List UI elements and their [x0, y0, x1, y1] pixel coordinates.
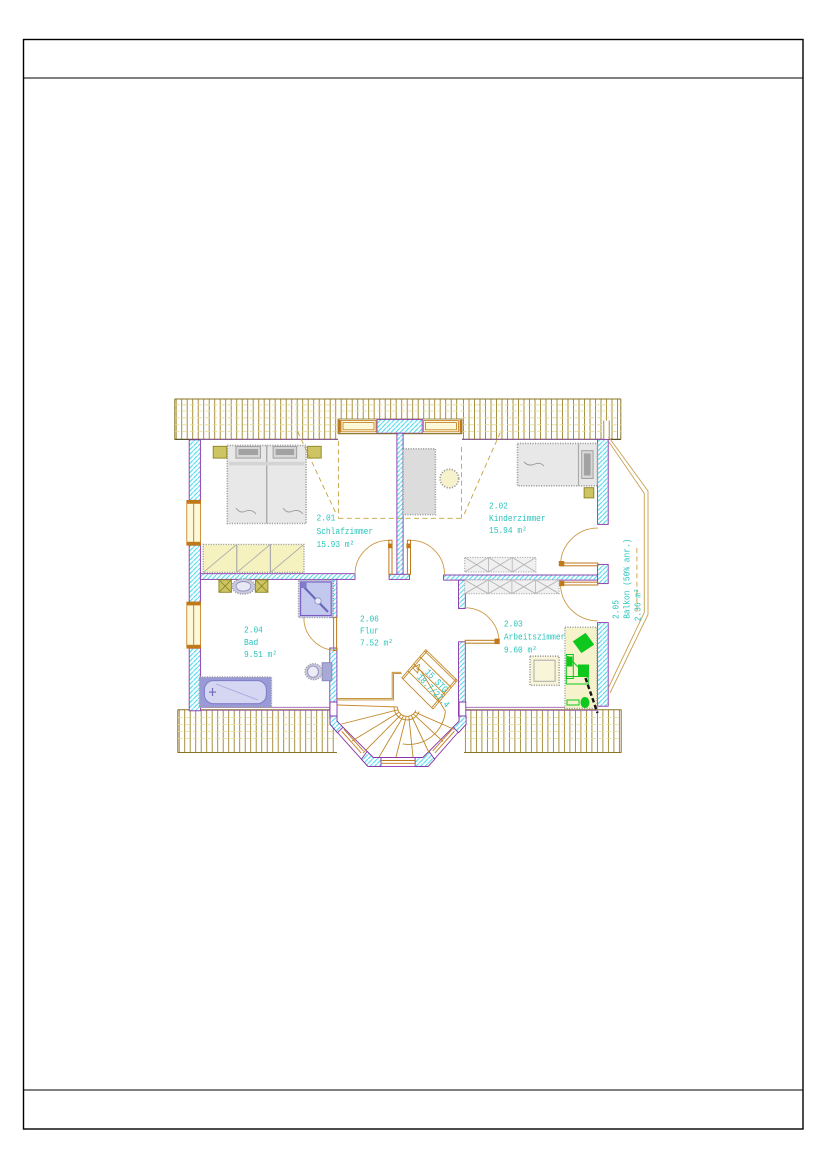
svg-text:7.52 m²: 7.52 m²: [360, 638, 393, 649]
svg-text:Bad: Bad: [244, 637, 258, 648]
svg-text:2.36 m²: 2.36 m²: [633, 588, 644, 621]
svg-text:9.60 m²: 9.60 m²: [504, 645, 537, 656]
svg-text:2.03: 2.03: [504, 618, 523, 629]
svg-text:2.04: 2.04: [244, 625, 263, 636]
svg-text:15.94 m²: 15.94 m²: [489, 525, 527, 536]
svg-text:Balkon (50% anr.): Balkon (50% anr.): [622, 539, 633, 619]
svg-text:Flur: Flur: [360, 626, 379, 637]
svg-text:Kinderzimmer: Kinderzimmer: [489, 513, 546, 524]
svg-text:9.51 m²: 9.51 m²: [244, 649, 277, 660]
svg-text:2.06: 2.06: [360, 614, 379, 625]
svg-text:15.93 m²: 15.93 m²: [317, 539, 355, 550]
svg-text:2.01: 2.01: [317, 513, 336, 524]
svg-text:2.02: 2.02: [489, 501, 508, 512]
svg-text:Arbeitszimmer: Arbeitszimmer: [504, 632, 565, 643]
svg-text:2.05: 2.05: [611, 600, 622, 619]
svg-text:Schlafzimmer: Schlafzimmer: [317, 526, 374, 537]
